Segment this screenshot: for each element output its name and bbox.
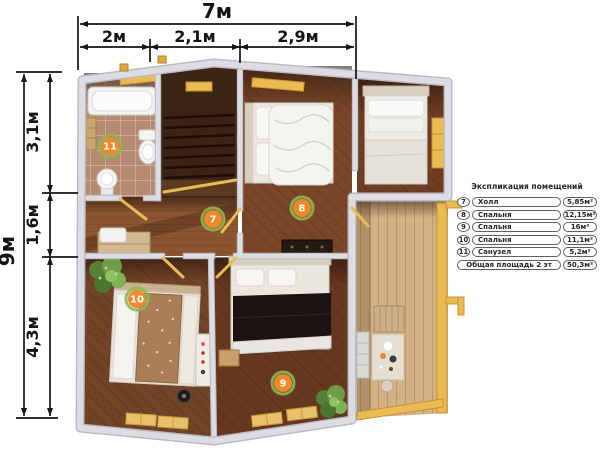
window-bedroom10-2 <box>158 416 189 429</box>
speaker <box>178 390 191 403</box>
bed-top-right <box>363 86 429 184</box>
legend-name: Холл <box>472 197 561 207</box>
dim-left-seg3: 4,3м <box>23 316 42 357</box>
bed-bedroom8 <box>245 103 333 185</box>
room-badge-bedroom10: 10 <box>126 288 148 310</box>
dim-left-seg1: 3,1м <box>23 111 42 152</box>
legend-row-total: Общая площадь 2 эт 50,3м² <box>457 260 597 270</box>
dim-top-seg2: 2,1м <box>174 27 215 46</box>
legend-row-hall: 7 Холл 5,85м² <box>457 197 597 207</box>
legend-row-bedroom8: 8 Спальня 12,15м² <box>457 210 597 220</box>
hall-bench <box>98 228 150 257</box>
balcony-table <box>372 334 404 380</box>
legend-row-bathroom: 11 Санузел 5,2м² <box>457 247 597 257</box>
wardrobe-top-right <box>432 118 445 168</box>
wall-top-ornament-2 <box>158 56 166 63</box>
legend-num: 11 <box>457 247 470 257</box>
dim-left-total: 9м <box>0 236 19 266</box>
room-badge-bathroom: 11 <box>99 135 121 157</box>
legend-area: 5,85м² <box>563 197 597 207</box>
legend-title: Экспликация помещений <box>457 182 597 191</box>
dresser-bedroom8 <box>282 240 332 254</box>
legend-num: 8 <box>457 210 470 220</box>
legend-total-area: 50,3м² <box>563 260 597 270</box>
legend-area: 5,2м² <box>563 247 597 257</box>
toilet <box>139 130 157 164</box>
bathtub <box>88 87 156 115</box>
room-badge-hall: 7 <box>202 208 224 230</box>
legend-num: 10 <box>457 235 470 245</box>
legend-num: 9 <box>457 222 470 232</box>
legend-row-bedroom10: 10 Спальня 11,1м² <box>457 235 597 245</box>
dim-top-total: 7м <box>202 0 232 23</box>
legend-area: 16м² <box>563 222 597 232</box>
wall-top-ornament-1 <box>120 64 128 71</box>
legend-name: Спальня <box>472 222 561 232</box>
window-bedroom10-1 <box>126 413 157 426</box>
balcony-bench <box>374 306 404 332</box>
badge-label-bedroom10: 10 <box>130 295 144 306</box>
room-badge-bedroom8: 8 <box>291 197 313 219</box>
bathroom-shelf <box>86 118 96 150</box>
legend-area: 12,15м² <box>563 210 597 220</box>
dim-top-seg1: 2м <box>102 27 126 46</box>
badge-label-hall: 7 <box>210 215 217 226</box>
room-legend: Экспликация помещений 7 Холл 5,85м² 8 Сп… <box>457 182 597 273</box>
floor-plan-page: 11 7 8 10 9 <box>0 0 600 450</box>
nightstand-bedroom9 <box>219 350 239 366</box>
dim-top-seg3: 2,9м <box>277 27 318 46</box>
legend-name: Спальня <box>472 235 561 245</box>
stairs-ceiling-light <box>186 82 212 91</box>
bed-bedroom9 <box>229 256 331 354</box>
legend-total-label: Общая площадь 2 эт <box>457 260 561 270</box>
balcony-stool <box>381 380 393 392</box>
badge-label-bedroom9: 9 <box>280 379 287 390</box>
legend-row-bedroom9: 9 Спальня 16м² <box>457 222 597 232</box>
bed-bedroom10 <box>109 282 200 386</box>
legend-name: Спальня <box>472 210 561 220</box>
legend-area: 11,1м² <box>563 235 597 245</box>
dim-left-seg2: 1,6м <box>23 204 42 245</box>
room-badge-bedroom9: 9 <box>272 372 294 394</box>
legend-num: 7 <box>457 197 470 207</box>
legend-name: Санузел <box>472 247 561 257</box>
badge-label-bathroom: 11 <box>103 142 117 153</box>
balcony-radiator <box>357 332 369 378</box>
badge-label-bedroom8: 8 <box>299 204 306 215</box>
